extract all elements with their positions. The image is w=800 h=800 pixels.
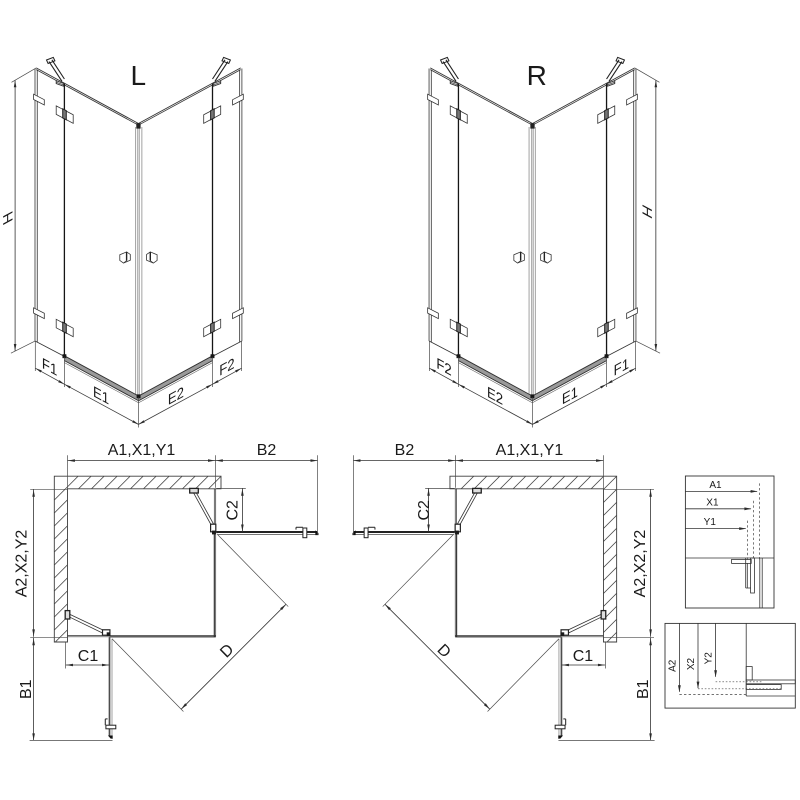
svg-text:A2: A2	[667, 659, 678, 672]
svg-text:Y1: Y1	[704, 517, 717, 528]
svg-text:C2: C2	[225, 500, 242, 521]
svg-text:B2: B2	[257, 442, 277, 459]
svg-text:X2: X2	[686, 657, 697, 670]
svg-text:Y2: Y2	[704, 652, 715, 665]
svg-text:B1: B1	[18, 679, 35, 699]
svg-text:A1,X1,Y1: A1,X1,Y1	[496, 442, 564, 459]
svg-text:R: R	[527, 60, 547, 91]
svg-text:C1: C1	[78, 648, 99, 665]
svg-text:B2: B2	[395, 442, 415, 459]
svg-text:A2,X2,Y2: A2,X2,Y2	[632, 530, 649, 598]
svg-text:C2: C2	[416, 500, 433, 521]
svg-text:A1: A1	[709, 480, 722, 491]
svg-text:A2,X2,Y2: A2,X2,Y2	[14, 530, 31, 598]
svg-text:L: L	[131, 60, 147, 91]
svg-text:C1: C1	[573, 648, 594, 665]
svg-text:B1: B1	[635, 679, 652, 699]
svg-text:X1: X1	[706, 497, 719, 508]
svg-text:A1,X1,Y1: A1,X1,Y1	[108, 442, 176, 459]
